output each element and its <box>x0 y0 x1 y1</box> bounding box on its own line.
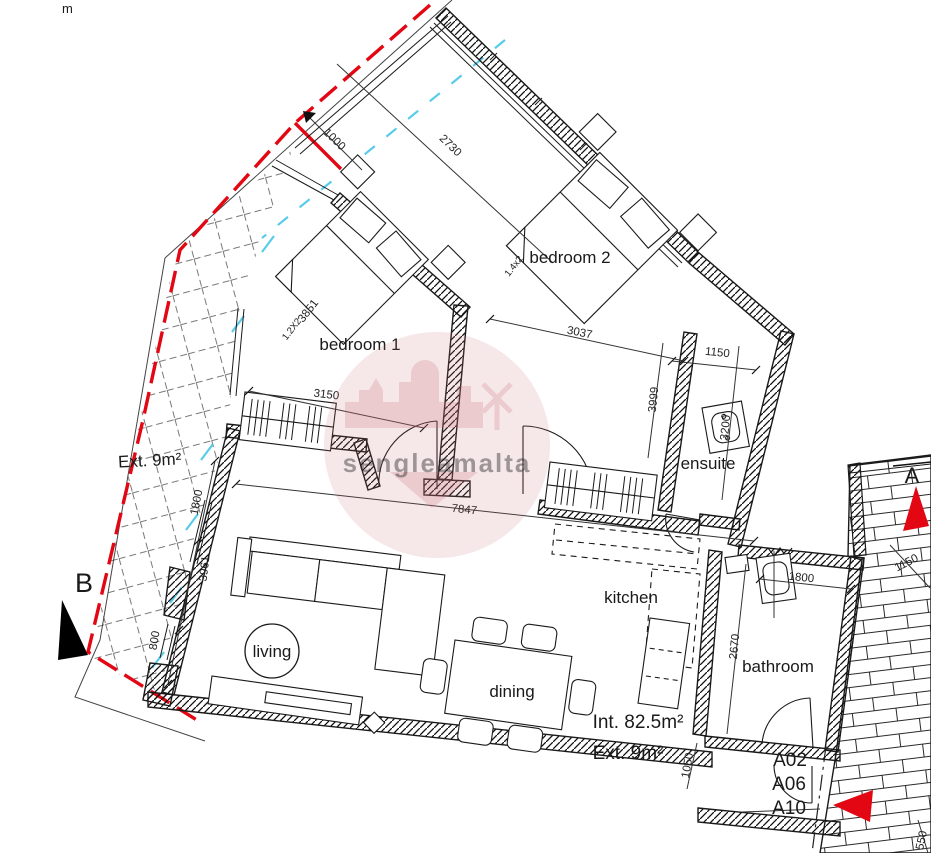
label-external-area: Ext. 9m² <box>593 743 664 764</box>
label-kitchen: kitchen <box>604 588 658 607</box>
section-b-label: B <box>75 568 93 598</box>
wardrobe-1 <box>239 392 336 451</box>
label-living: living <box>253 642 292 661</box>
floor-plan-page: 1000 2730 3851 1.2X2 1.4x2 3037 3150 399… <box>0 0 931 853</box>
floor-plan-drawing: 1000 2730 3851 1.2X2 1.4x2 3037 3150 399… <box>0 0 931 853</box>
unit-a10: A10 <box>772 798 806 819</box>
watermark-text: sengleamalta <box>343 448 532 478</box>
dim-terrace-3961: 3961 <box>198 555 213 582</box>
dim-entry-wall: 2730 <box>437 133 464 159</box>
dim-bed2-depth: 3999 <box>647 386 662 413</box>
label-dining: dining <box>489 682 534 701</box>
dim-bath-depth: 2670 <box>728 633 743 660</box>
label-ensuite: ensuite <box>681 454 736 473</box>
label-bathroom: bathroom <box>742 657 814 676</box>
unit-a02: A02 <box>773 750 807 771</box>
dim-notch: 1000 <box>321 127 348 153</box>
dim-ensuite-width: 1150 <box>704 346 730 361</box>
section-a-label: A <box>905 463 920 488</box>
utility-cyan-line <box>262 40 505 238</box>
watermark: sengleamalta <box>324 332 550 558</box>
label-internal-area: Int. 82.5m² <box>593 712 684 733</box>
label-terrace-area: Ext. 9m² <box>118 449 183 471</box>
section-b-arrow <box>58 600 88 660</box>
label-bedroom2: bedroom 2 <box>529 248 610 267</box>
kitchen-fridge <box>638 618 690 709</box>
corner-cut-text: m <box>62 1 73 16</box>
bed-2 <box>486 114 717 345</box>
unit-a06: A06 <box>772 774 806 795</box>
dim-bed2-width: 3037 <box>566 325 593 342</box>
